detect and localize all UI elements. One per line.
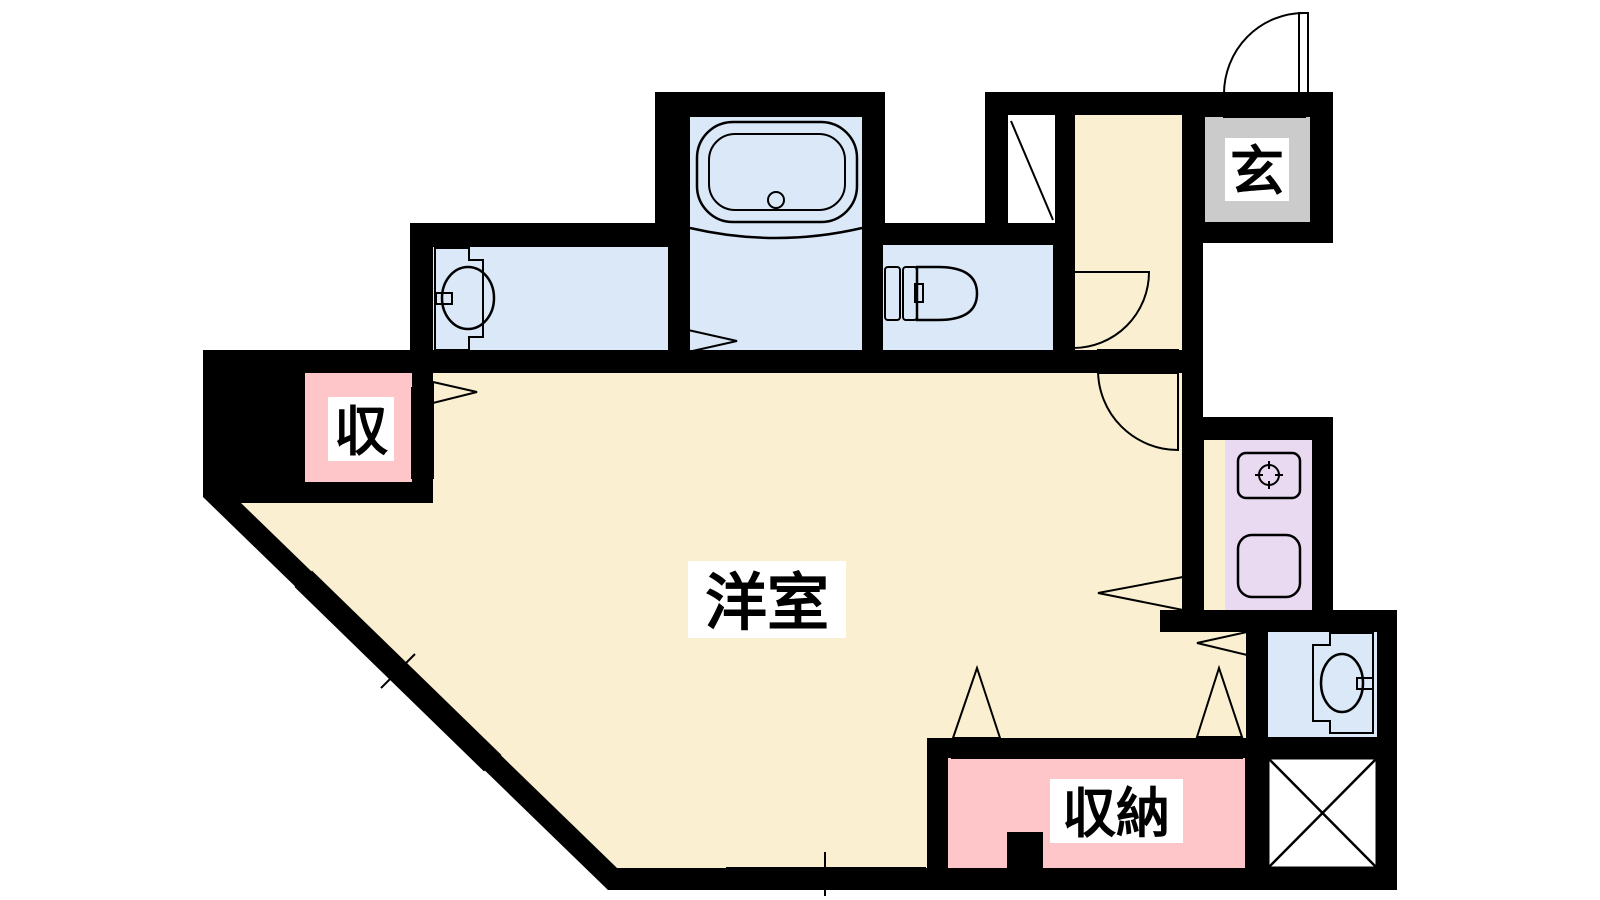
label-western-room: 洋室 <box>688 561 846 639</box>
floorplan-canvas: 玄 収 収納 洋室 <box>0 0 1600 900</box>
floorplan-page: 玄 収 収納 洋室 <box>0 0 1600 900</box>
hallway-floor <box>1075 115 1182 350</box>
pipe-space-box <box>1268 758 1377 868</box>
label-entrance-text: 玄 <box>1230 140 1284 203</box>
label-storage-large-text: 収納 <box>1062 782 1170 845</box>
label-storage-small-text: 収 <box>334 400 388 463</box>
storage-large-pillar <box>1007 832 1043 868</box>
toilet-room-floor <box>883 245 1053 350</box>
label-storage-large: 収納 <box>1050 779 1183 845</box>
label-entrance: 玄 <box>1225 138 1289 203</box>
label-western-room-text: 洋室 <box>705 566 829 639</box>
washroom-floor <box>433 247 668 350</box>
label-storage-small: 収 <box>328 397 394 463</box>
